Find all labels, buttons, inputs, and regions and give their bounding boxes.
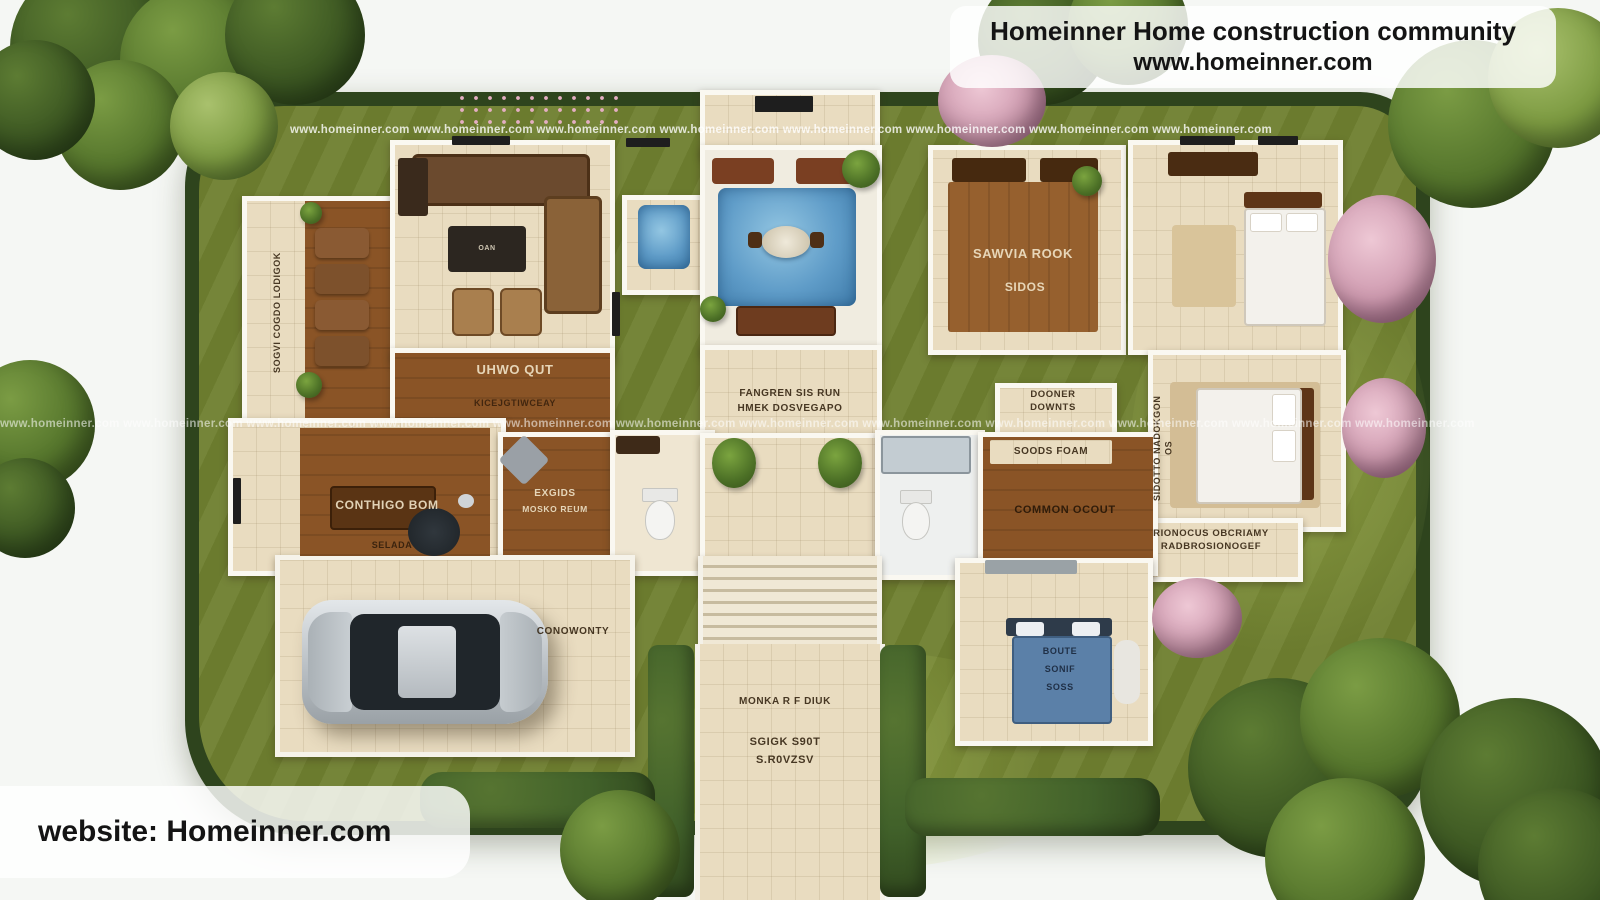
pillow bbox=[1072, 622, 1100, 636]
flowering-shrub bbox=[1152, 578, 1242, 658]
living-room-label: UHWO QUT bbox=[455, 362, 575, 378]
bedroom-couch bbox=[1114, 640, 1140, 704]
courtyard-chair bbox=[810, 232, 824, 248]
family-room-label: SAWVIA ROOK bbox=[948, 246, 1098, 262]
lounge-chair bbox=[315, 228, 369, 258]
driveway-label: CONOWONTY bbox=[518, 626, 628, 639]
hall-label-1: FANGREN SIS RUN bbox=[735, 388, 845, 401]
media-unit bbox=[398, 158, 428, 216]
courtyard-console bbox=[736, 306, 836, 336]
armchair bbox=[452, 288, 494, 336]
tree bbox=[560, 790, 680, 900]
vanity bbox=[616, 436, 660, 454]
car-rear bbox=[308, 612, 352, 712]
tree bbox=[170, 72, 278, 180]
closet-label-1: DOONER bbox=[1008, 389, 1098, 401]
car bbox=[302, 600, 548, 724]
header-brand-box: Homeinner Home construction community ww… bbox=[950, 6, 1556, 88]
office-window bbox=[233, 478, 241, 524]
walkway-hedge-right bbox=[880, 645, 926, 897]
family-room-sublabel: SIDOS bbox=[985, 280, 1065, 295]
bed-label-3: SOSS bbox=[1012, 682, 1108, 693]
bedroom-right-vertical-label: SIDOTTO NADOKGON OS bbox=[1152, 392, 1175, 504]
coffee-table: OAN bbox=[448, 226, 526, 272]
hall-plant bbox=[818, 438, 862, 488]
deck-plant bbox=[296, 372, 322, 398]
footer-website: website: Homeinner.com bbox=[0, 786, 470, 878]
toilet bbox=[902, 502, 930, 540]
dresser bbox=[1168, 152, 1258, 176]
walkway-path bbox=[695, 644, 885, 900]
courtyard-plant bbox=[842, 150, 880, 188]
entrance-steps bbox=[698, 556, 882, 644]
walkway-label-3: S.R0VZSV bbox=[728, 754, 842, 768]
patio-note-1: RIONOCUS OBCRIAMY bbox=[1132, 528, 1290, 540]
floor-plan-render: OAN UHWO QUT KICEJGTIWCEAY FANGREN SIS R… bbox=[0, 0, 1600, 900]
courtyard-plant bbox=[700, 296, 726, 322]
footer-brand-box: website: Homeinner.com bbox=[0, 786, 470, 878]
deck-vertical-label: SOGVI COGDO LODIGOK bbox=[272, 228, 283, 398]
courtyard-chair bbox=[748, 232, 762, 248]
toilet bbox=[645, 500, 675, 540]
deck-plant bbox=[300, 202, 322, 224]
lounge-chair bbox=[315, 264, 369, 294]
hall-plant bbox=[712, 438, 756, 488]
office-sublabel: SELADA bbox=[352, 540, 432, 551]
hall-label-2: HMEK DOSVEGAPO bbox=[728, 403, 852, 416]
window bbox=[626, 138, 670, 147]
pillow bbox=[1250, 213, 1282, 232]
living-room-sublabel: KICEJGTIWCEAY bbox=[440, 398, 590, 409]
window bbox=[612, 292, 620, 336]
small-pool bbox=[638, 205, 690, 269]
closet-label-2: DOWNTS bbox=[1008, 402, 1098, 414]
pillow bbox=[1286, 213, 1318, 232]
window bbox=[1180, 136, 1235, 145]
pillow bbox=[1016, 622, 1044, 636]
hedge-bottom-right bbox=[905, 778, 1160, 836]
family-room-plant bbox=[1072, 166, 1102, 196]
coffee-table-label: OAN bbox=[478, 245, 495, 254]
sofa-sectional bbox=[544, 196, 602, 314]
utility-label-2: MOSKO REUM bbox=[500, 504, 610, 515]
shower bbox=[881, 436, 971, 474]
bed-headboard bbox=[1244, 192, 1322, 208]
header-title: Homeinner Home construction community bbox=[950, 16, 1556, 47]
window bbox=[452, 136, 510, 145]
header-url: www.homeinner.com bbox=[950, 49, 1556, 77]
window bbox=[1258, 136, 1298, 145]
walkway-label-2: SGIGK S90T bbox=[725, 736, 845, 750]
corridor-label: COMMON OCOUT bbox=[995, 504, 1135, 518]
rug bbox=[1172, 225, 1236, 307]
utility-label-1: EXGIDS bbox=[505, 488, 605, 501]
store-label: SOODS FOAM bbox=[992, 446, 1110, 459]
patio-note-2: RADBROSIONOGEF bbox=[1140, 541, 1282, 553]
pillow bbox=[1272, 430, 1296, 462]
bed-label-2: SONIF bbox=[1012, 664, 1108, 675]
courtyard-table bbox=[762, 226, 810, 258]
courtyard-bench bbox=[712, 158, 774, 184]
watermark-row-top: www.homeinner.com www.homeinner.com www.… bbox=[290, 124, 1290, 136]
walkway-label-1: MONKA R F DIUK bbox=[725, 696, 845, 709]
office-label: CONTHIGO BOM bbox=[312, 498, 462, 513]
lounge-chair bbox=[315, 300, 369, 330]
watermark-row-middle: www.homeinner.com www.homeinner.com www.… bbox=[0, 418, 1600, 430]
bed-label-1: BOUTE bbox=[1012, 646, 1108, 657]
flowering-tree bbox=[1328, 195, 1436, 323]
lounge-chair bbox=[315, 336, 369, 366]
entry-door bbox=[755, 96, 813, 112]
dresser bbox=[952, 158, 1026, 182]
ac-unit bbox=[985, 560, 1077, 574]
car-roof bbox=[398, 626, 456, 698]
armchair bbox=[500, 288, 542, 336]
